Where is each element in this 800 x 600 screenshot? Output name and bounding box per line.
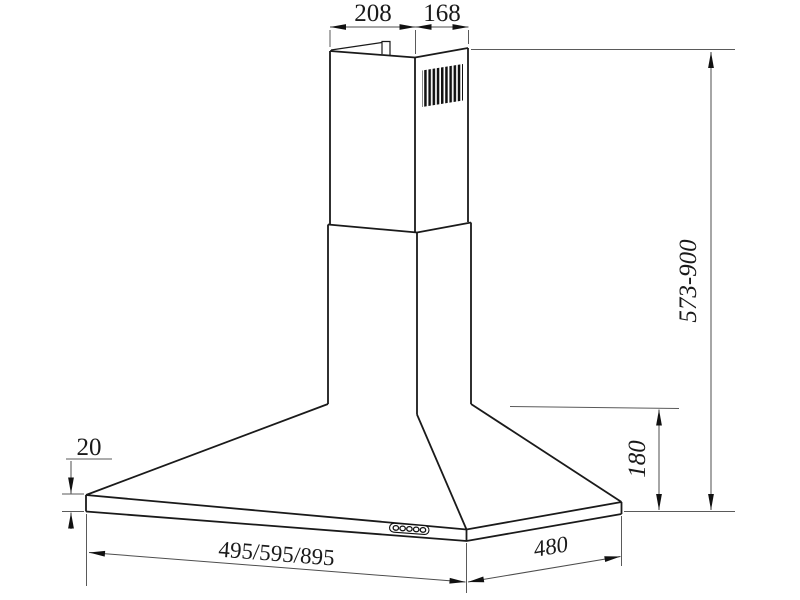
dimension-hood-width-options: 495/595/895 — [89, 537, 466, 583]
vent-grille-icon — [422, 64, 463, 107]
dim-label-rim-thickness: 20 — [77, 434, 102, 461]
dim-label-hood-width-options: 495/595/895 — [218, 537, 336, 571]
extension-lines — [62, 30, 735, 593]
mounting-tab — [382, 42, 390, 56]
dimension-hood-depth: 480 — [468, 531, 621, 582]
dim-label-canopy-height: 180 — [624, 440, 651, 478]
dimension-canopy-height: 180 — [624, 410, 659, 511]
canopy-body — [86, 404, 622, 530]
dim-label-chimney-top-width: 208 — [354, 0, 392, 27]
base-rim — [86, 495, 622, 541]
dim-label-hood-depth: 480 — [532, 531, 571, 561]
dimension-total-height-range: 573-900 — [675, 52, 711, 510]
dimension-chimney-top-depth: 168 — [416, 0, 469, 27]
chimney-seam — [328, 223, 471, 233]
chimney-lower-section — [328, 223, 471, 415]
dim-label-chimney-top-depth: 168 — [423, 0, 461, 27]
dimension-chimney-top-width: 208 — [330, 0, 416, 27]
dim-label-total-height-range: 573-900 — [675, 239, 702, 323]
cooker-hood-dimension-drawing: 208 168 573-900 180 20 495/595/895 — [0, 0, 800, 600]
drawing-canvas: 208 168 573-900 180 20 495/595/895 — [0, 0, 800, 600]
